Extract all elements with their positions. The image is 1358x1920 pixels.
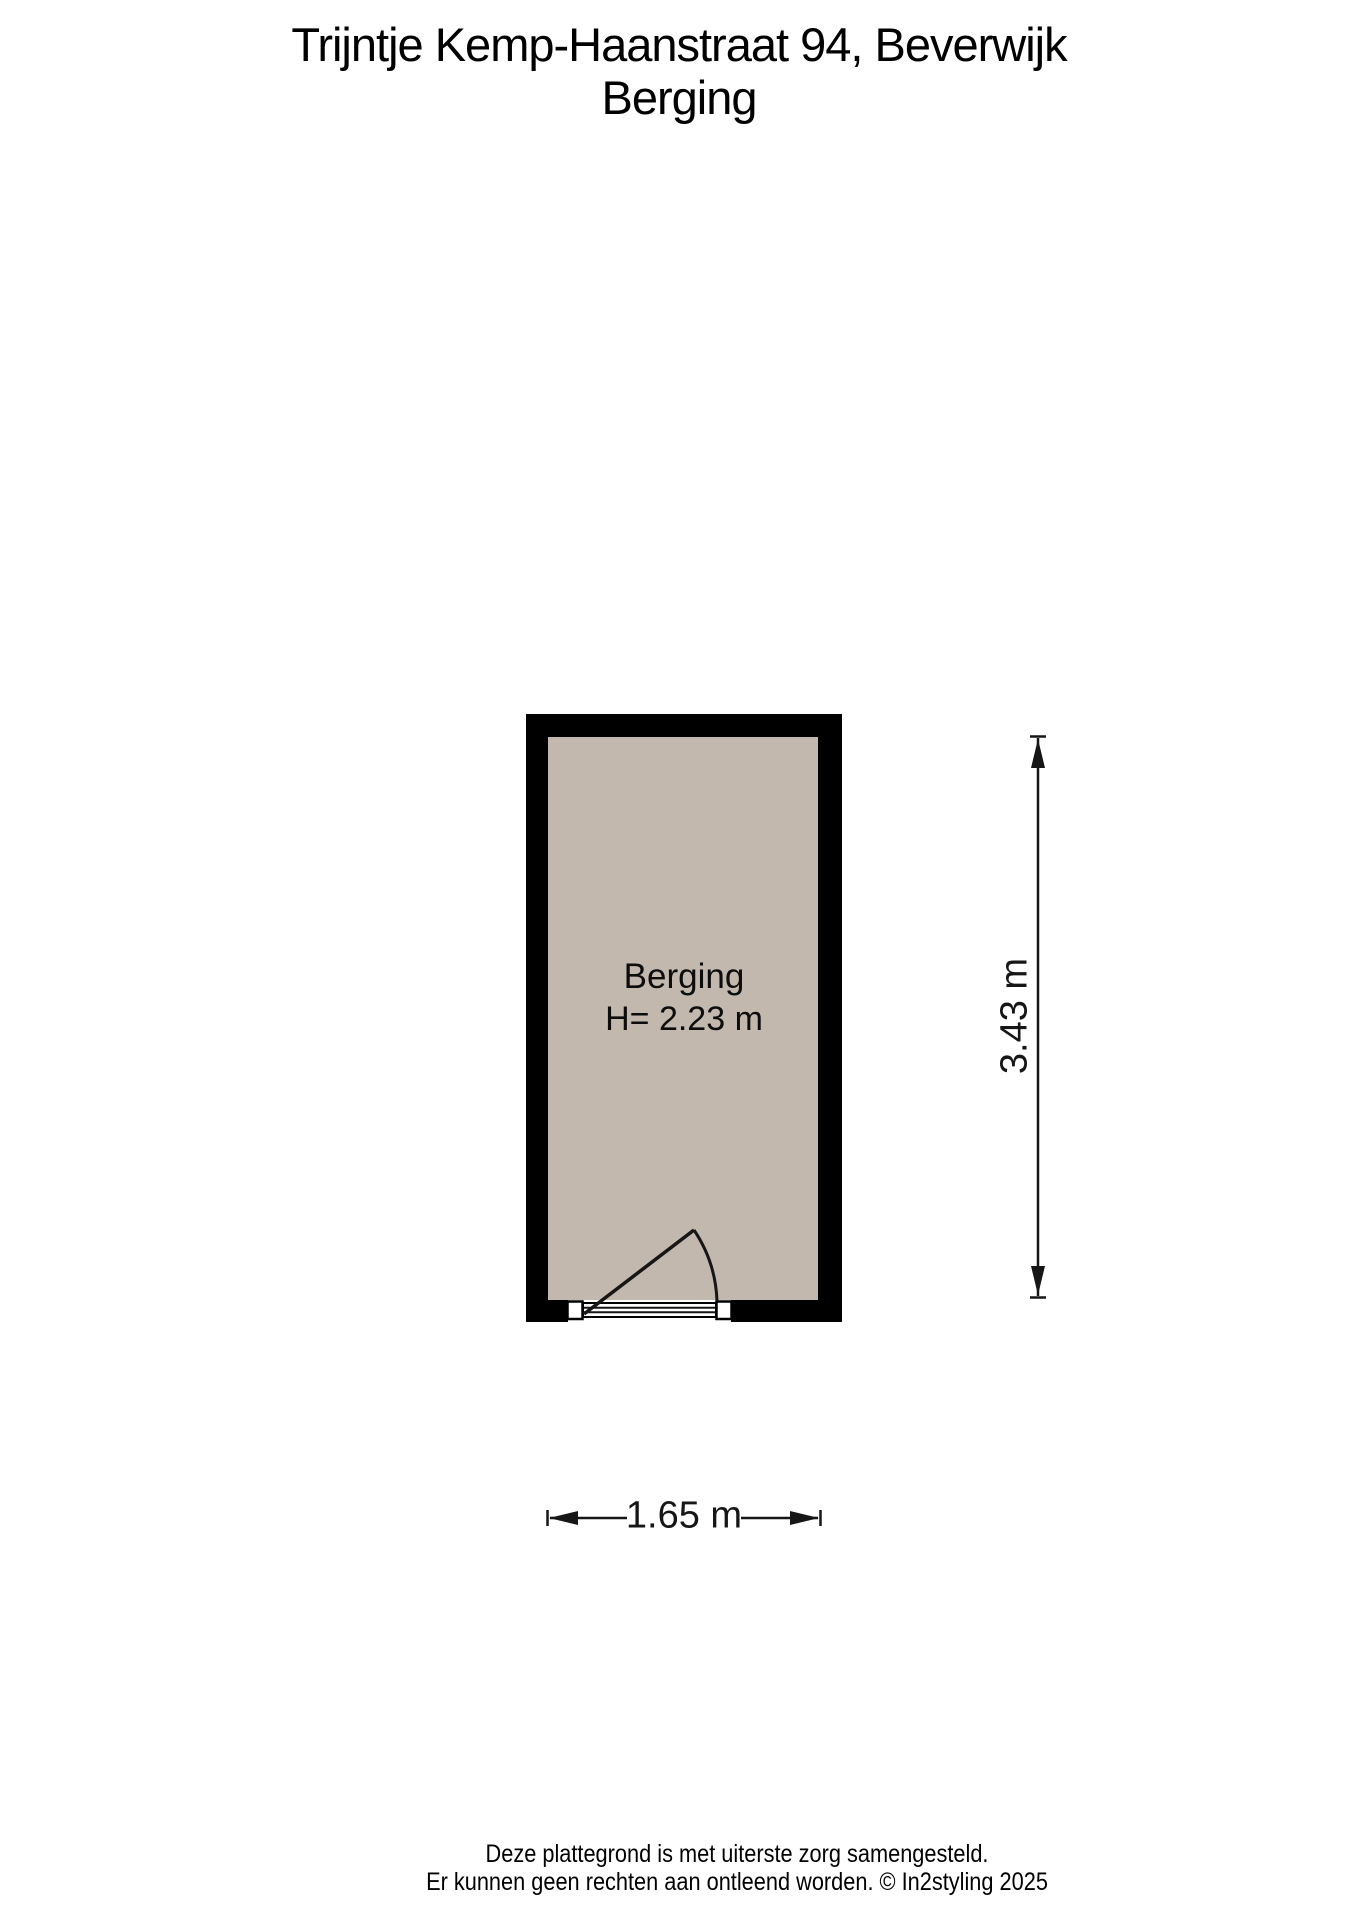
room-label: Berging H= 2.23 m	[548, 956, 820, 1040]
wall-left	[526, 714, 548, 1322]
room-ceiling-height-label: H= 2.23 m	[548, 998, 820, 1040]
footer-disclaimer: Deze plattegrond is met uiterste zorg sa…	[426, 1840, 1048, 1896]
page-title-room: Berging	[0, 71, 1358, 124]
page-title: Trijntje Kemp-Haanstraat 94, Beverwijk B…	[0, 18, 1358, 124]
height-dim-arrow-up	[1031, 739, 1045, 768]
footer-line-2: Er kunnen geen rechten aan ontleend word…	[426, 1868, 1048, 1896]
width-dim-arrow-right	[790, 1511, 819, 1525]
wall-bottom-right	[731, 1300, 842, 1322]
wall-top	[526, 714, 842, 737]
footer-line-1: Deze plattegrond is met uiterste zorg sa…	[426, 1840, 1048, 1868]
width-dimension-text: 1.65 m	[626, 1495, 742, 1538]
floorplan-page: Trijntje Kemp-Haanstraat 94, Beverwijk B…	[0, 0, 1358, 1920]
page-title-address: Trijntje Kemp-Haanstraat 94, Beverwijk	[0, 18, 1358, 71]
height-dimension-text: 3.43 m	[994, 958, 1037, 1074]
width-dim-arrow-left	[549, 1511, 578, 1525]
wall-right	[818, 714, 842, 1322]
room-name-label: Berging	[548, 956, 820, 998]
wall-bottom-left	[526, 1300, 568, 1322]
height-dim-arrow-down	[1031, 1266, 1045, 1295]
